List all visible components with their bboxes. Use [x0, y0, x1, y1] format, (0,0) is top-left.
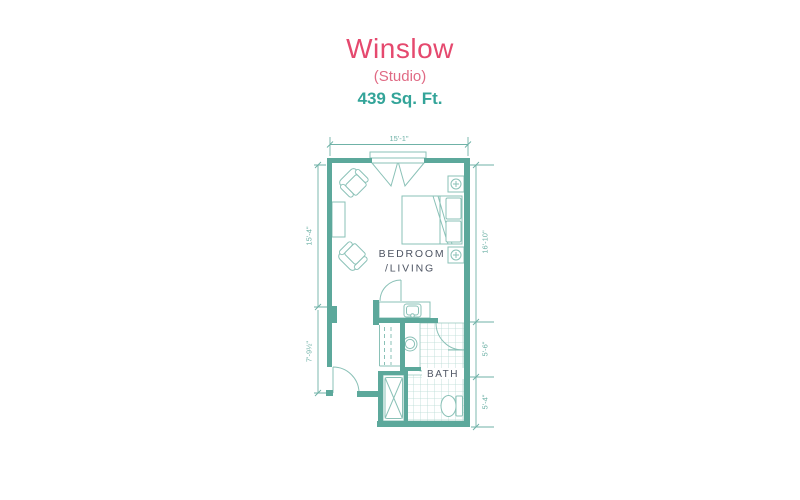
unit-area: 439 Sq. Ft.	[0, 89, 800, 109]
unit-name: Winslow	[0, 34, 800, 65]
armchair-1	[337, 166, 371, 200]
dimension-left-upper-label: 15'-4"	[305, 226, 314, 245]
nightstand-lamp-top	[448, 176, 464, 192]
floorplan-svg: 15'-1" 15'-4" 7'-9½" 16'-10" 5'-6" 5'-4"	[280, 125, 520, 445]
bathroom-door-swing	[380, 280, 401, 301]
bed	[402, 196, 462, 244]
dimension-right-bedroom-label: 16'-10"	[481, 230, 490, 254]
title-block: Winslow (Studio) 439 Sq. Ft.	[0, 34, 800, 109]
entry-door-swing	[333, 367, 359, 393]
vanity-sink	[379, 302, 430, 318]
floorplan-drawing: 15'-1" 15'-4" 7'-9½" 16'-10" 5'-6" 5'-4"	[280, 125, 520, 445]
armchair-2	[336, 239, 370, 273]
bedroom-label-line2: /LIVING	[385, 263, 435, 275]
toilet	[441, 396, 463, 417]
dimension-left-lower-label: 7'-9½"	[305, 341, 314, 363]
dimension-right-bedroom: 16'-10"	[470, 162, 494, 325]
dimension-right-bath-lower: 5'-4"	[471, 377, 494, 430]
bath-label: BATH	[427, 369, 459, 380]
pedestal-sink	[403, 337, 417, 351]
room-label-bedroom: BEDROOM /LIVING	[379, 248, 446, 275]
console-table	[332, 202, 345, 237]
linen-closet	[380, 325, 401, 366]
dimension-right-bath-upper: 5'-6"	[470, 322, 494, 380]
dimension-right-bath-lower-label: 5'-4"	[481, 394, 490, 409]
shower	[383, 375, 404, 421]
bedroom-label-line1: BEDROOM	[379, 248, 446, 260]
floorplan-page: Winslow (Studio) 439 Sq. Ft. 15'-1" 15'-…	[0, 0, 800, 500]
dimension-left-lower: 7'-9½"	[305, 310, 327, 396]
unit-type: (Studio)	[0, 68, 800, 85]
dimension-right-bath-upper-label: 5'-6"	[481, 341, 490, 356]
room-label-bath: BATH	[422, 368, 464, 380]
nightstand-lamp-bottom	[448, 247, 464, 263]
double-entry-door	[370, 152, 426, 186]
dimension-top-label: 15'-1"	[389, 134, 408, 143]
